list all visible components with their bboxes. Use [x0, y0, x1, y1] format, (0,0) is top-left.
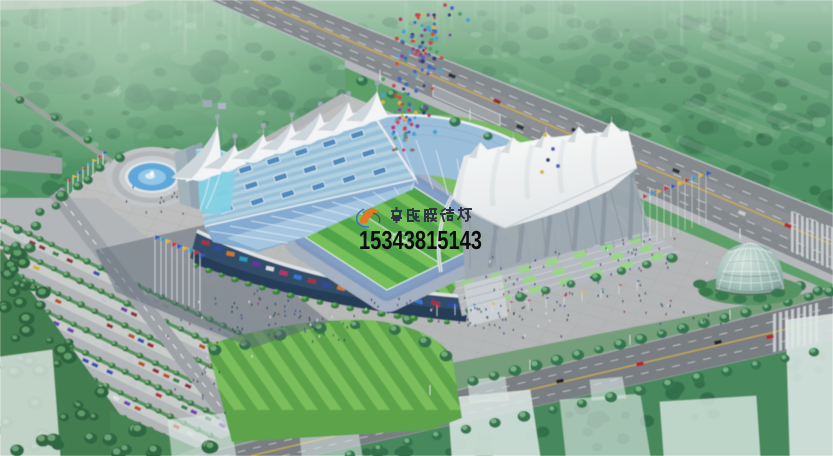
svg-text:15343815143: 15343815143: [359, 227, 482, 255]
